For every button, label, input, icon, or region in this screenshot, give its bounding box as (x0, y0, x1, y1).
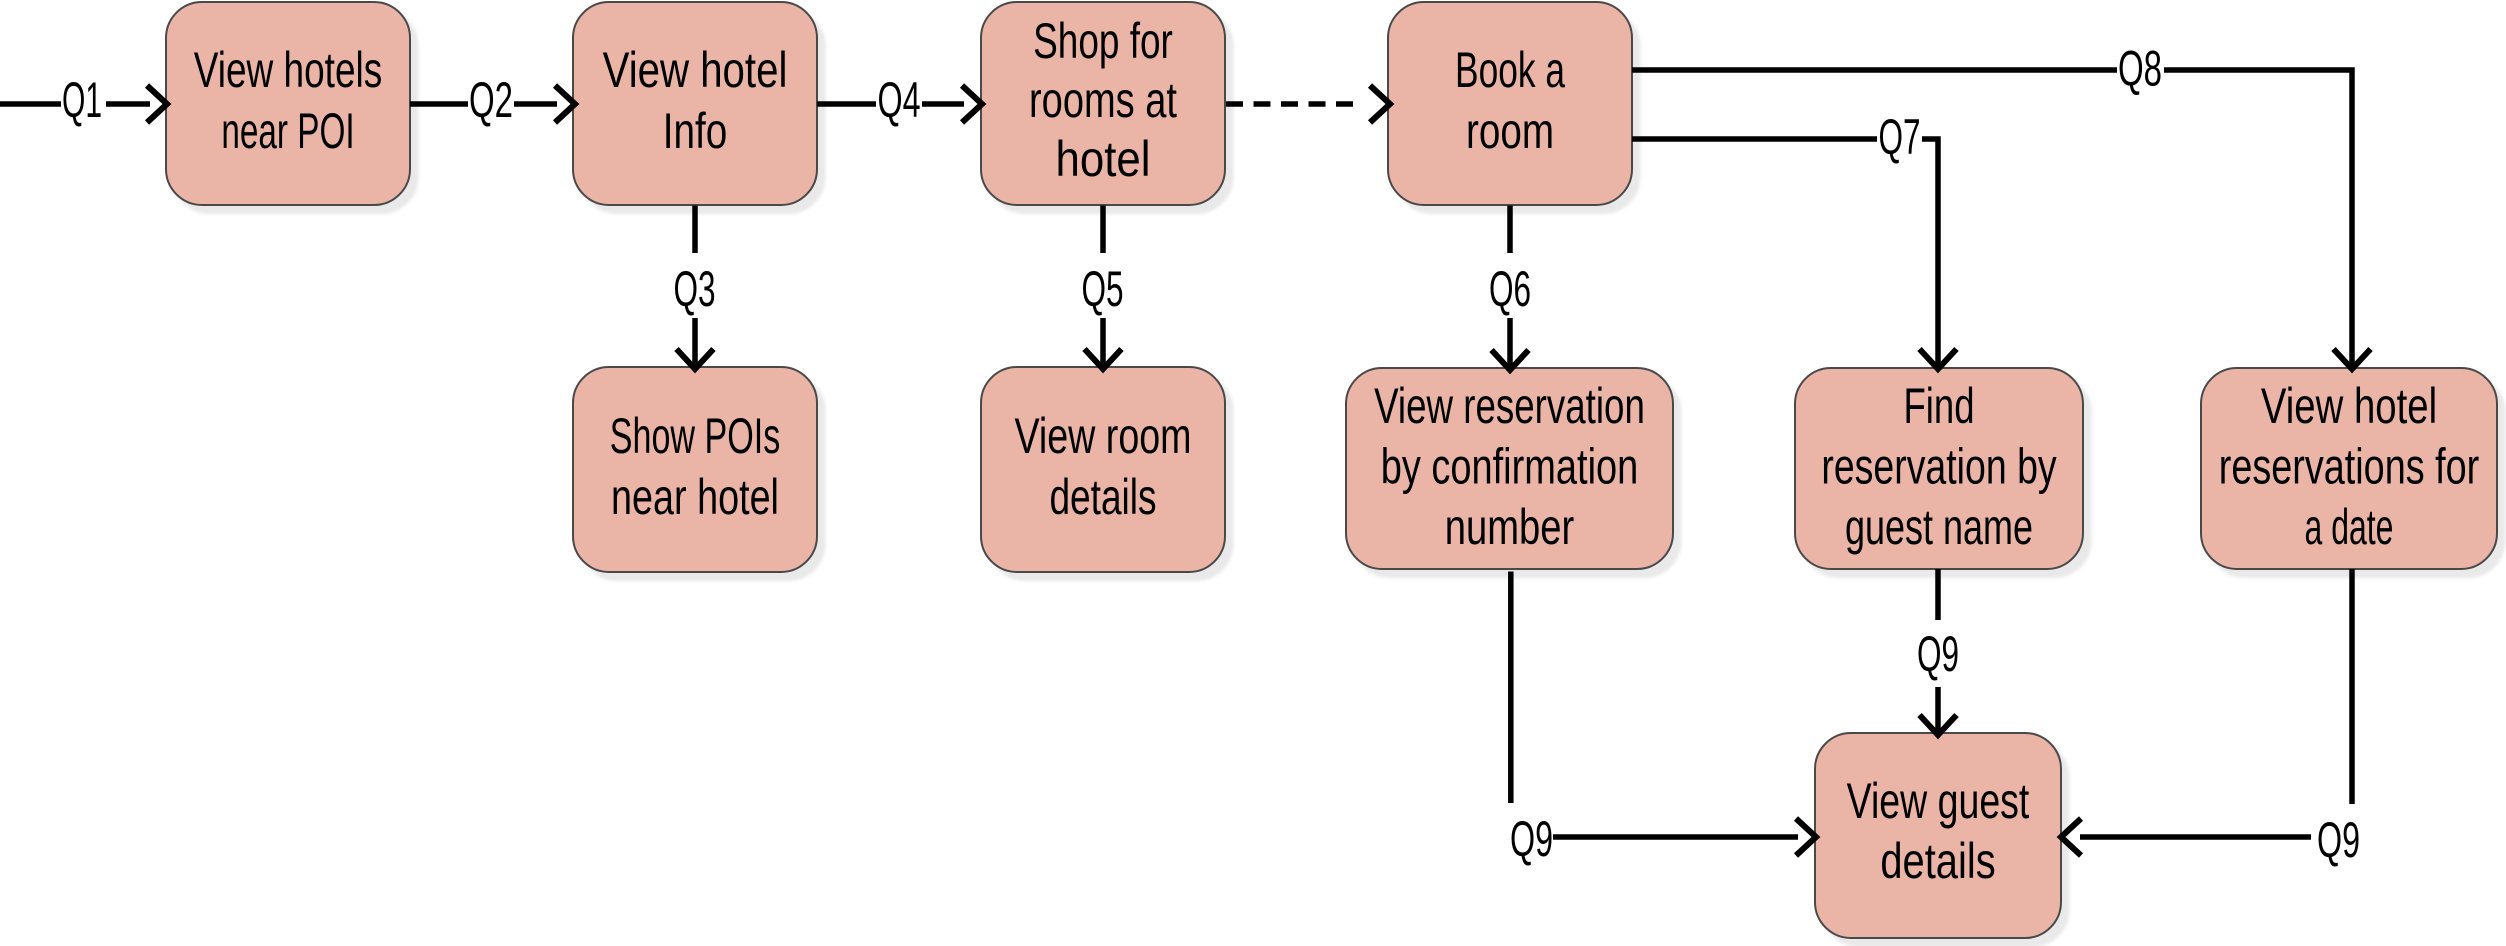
svg-text:Q5: Q5 (1082, 261, 1124, 317)
svg-text:guest name: guest name (1845, 499, 2033, 555)
svg-text:Q2: Q2 (469, 72, 513, 128)
svg-text:Book a: Book a (1455, 42, 1565, 98)
svg-text:Show POIs: Show POIs (610, 408, 781, 464)
svg-text:Q7: Q7 (1879, 109, 1921, 165)
svg-text:View reservation: View reservation (1374, 378, 1645, 434)
svg-text:reservations for: reservations for (2219, 439, 2480, 495)
svg-text:Q3: Q3 (674, 261, 716, 317)
svg-text:View guest: View guest (1847, 773, 2030, 829)
svg-text:Q9: Q9 (1917, 626, 1959, 682)
svg-text:by confirmation: by confirmation (1381, 439, 1639, 495)
svg-text:Q4: Q4 (878, 72, 921, 128)
svg-text:details: details (1880, 833, 1995, 889)
svg-text:View room: View room (1014, 408, 1191, 464)
svg-text:View hotel: View hotel (2261, 378, 2437, 434)
svg-text:Q6: Q6 (1489, 261, 1531, 317)
svg-text:hotel: hotel (1056, 131, 1151, 187)
svg-text:near hotel: near hotel (611, 469, 779, 525)
svg-text:Q8: Q8 (2118, 41, 2162, 97)
svg-text:Info: Info (663, 103, 728, 159)
svg-text:reservation by: reservation by (1821, 439, 2056, 495)
svg-text:Find: Find (1904, 378, 1975, 434)
svg-text:Shop for: Shop for (1033, 13, 1173, 69)
svg-text:rooms at: rooms at (1029, 72, 1177, 128)
svg-text:Q1: Q1 (62, 72, 102, 128)
svg-text:Q9: Q9 (2317, 812, 2360, 868)
svg-text:a date: a date (2305, 499, 2394, 555)
svg-text:room: room (1466, 103, 1554, 159)
svg-text:number: number (1445, 499, 1575, 555)
svg-text:Q9: Q9 (1510, 811, 1553, 867)
svg-text:View hotel: View hotel (603, 42, 788, 98)
svg-text:details: details (1049, 469, 1156, 525)
svg-text:near POI: near POI (221, 103, 354, 159)
svg-text:View hotels: View hotels (194, 42, 383, 98)
